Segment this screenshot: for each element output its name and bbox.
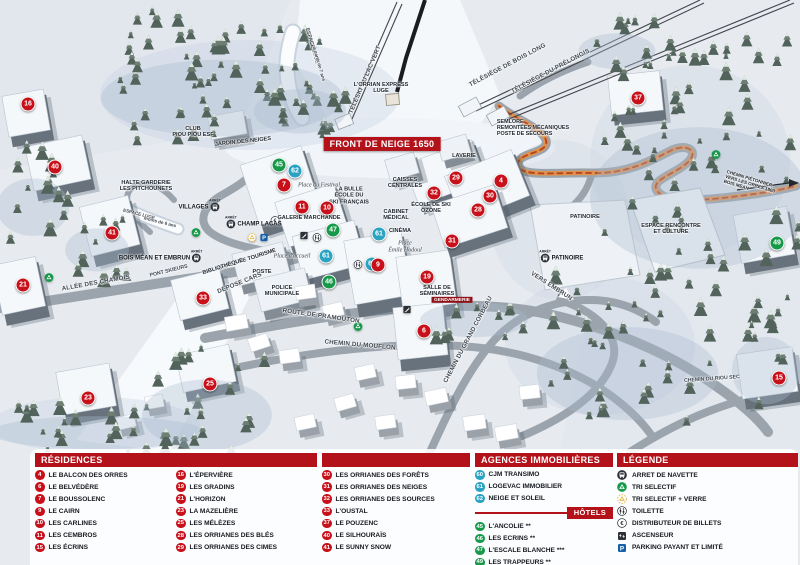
agencies-header: AGENCES IMMOBILIÈRES — [475, 453, 613, 467]
legende-item-label: DISTRIBUTEUR DE BILLETS — [632, 520, 721, 527]
legend-item: 7LE BOUSSOLENC — [35, 493, 176, 505]
legend-item: 31LES ORRIANES DES NEIGES — [322, 481, 470, 493]
legend-item-label: LE SUNNY SNOW — [336, 544, 392, 551]
legend-item: 45L'ANCOLIE ** — [475, 521, 613, 533]
legend-item-label: NEIGE ET SOLEIL — [489, 495, 545, 502]
legende-item-label: TRI SELECTIF + VERRE — [632, 496, 707, 503]
legend-item-label: LES ORRIANES DES SOURCES — [336, 496, 435, 503]
residences-list-c: 30LES ORRIANES DES FORÊTS31LES ORRIANES … — [322, 469, 470, 554]
legend-item: 15LES ÉCRINS — [35, 542, 176, 554]
legend-item-label: LE BALCON DES ORRES — [49, 472, 128, 479]
legend-item: 10LES CARLINES — [35, 517, 176, 529]
legend-item-label: L'ÉPERVIÈRE — [190, 472, 233, 479]
marker-number: 33 — [322, 507, 332, 517]
legend-item-label: LES GRADINS — [190, 484, 235, 491]
elevator-icon — [617, 531, 627, 541]
marker-number: 49 — [475, 558, 485, 565]
marker-number: 9 — [35, 507, 45, 517]
agencies-list: 60CJM TRANSIMO61LOGEVAC IMMOBILIER62NEIG… — [475, 469, 613, 505]
recycle-yellow-icon — [617, 494, 627, 504]
legend-item: 41LE SUNNY SNOW — [322, 542, 470, 554]
marker-number: 31 — [322, 482, 332, 492]
marker-number: 7 — [35, 494, 45, 504]
hotels-list: 45L'ANCOLIE **46LES ECRINS **47L'ESCALE … — [475, 521, 613, 565]
parking-icon: P — [617, 543, 627, 553]
legend-item: 62NEIGE ET SOLEIL — [475, 493, 613, 505]
marker-number: 62 — [475, 494, 485, 504]
hotels-header: HÔTELS — [475, 507, 613, 519]
legend-item-label: LES CARLINES — [49, 520, 97, 527]
euro-icon: € — [617, 518, 627, 528]
legend-item-label: LOGEVAC IMMOBILIER — [489, 483, 563, 490]
marker-number: 11 — [35, 531, 45, 541]
legende-item: TRI SELECTIF — [617, 481, 798, 493]
legende-item-label: TOILETTE — [632, 508, 664, 515]
legend-item-label: L'ANCOLIE ** — [489, 523, 531, 530]
legende-item-label: ARRET DE NAVETTE — [632, 472, 698, 479]
legend-item: 40LE SILHOURAÏS — [322, 529, 470, 541]
legende-item: PPARKING PAYANT ET LIMITÉ — [617, 542, 798, 554]
marker-number: 19 — [176, 482, 186, 492]
marker-number: 4 — [35, 470, 45, 480]
legend-item: 61LOGEVAC IMMOBILIER — [475, 481, 613, 493]
marker-number: 23 — [176, 507, 186, 517]
marker-number: 45 — [475, 522, 485, 532]
recycle-green-icon — [617, 482, 627, 492]
legende-item: TOILETTE — [617, 505, 798, 517]
legend-item: 23LA MAZELIÈRE — [176, 505, 317, 517]
legend-item: 25LES MÉLÈZES — [176, 517, 317, 529]
legend-item: 9LE CAIRN — [35, 505, 176, 517]
legend-item-label: LES ORRIANES DES BLÉS — [190, 532, 274, 539]
bus-icon — [617, 470, 627, 480]
legend-item: 46LES ECRINS ** — [475, 533, 613, 545]
legend-item: 16L'ÉPERVIÈRE — [176, 469, 317, 481]
legend-item-label: LE CAIRN — [49, 508, 80, 515]
legend-item-label: LES CEMBROS — [49, 532, 97, 539]
legend-item: 6LE BELVÉDÈRE — [35, 481, 176, 493]
residences-section-cont: 30LES ORRIANES DES FORÊTS31LES ORRIANES … — [322, 453, 470, 554]
legend-item-label: LE SILHOURAÏS — [336, 532, 387, 539]
legende-header: LÉGENDE — [617, 453, 798, 467]
legend-item: 21L'HORIZON — [176, 493, 317, 505]
legend-item: 29LES ORRIANES DES CIMES — [176, 542, 317, 554]
legend-item: 33L'OUSTAL — [322, 505, 470, 517]
residences-header: RÉSIDENCES — [35, 453, 317, 467]
marker-number: 15 — [35, 543, 45, 553]
legend-item-label: L'HORIZON — [190, 496, 226, 503]
legend-item-label: LES ÉCRINS — [49, 544, 89, 551]
legend-item-label: LES ORRIANES DES FORÊTS — [336, 472, 429, 479]
marker-number: 61 — [475, 482, 485, 492]
marker-number: 16 — [176, 470, 186, 480]
legend-item-label: LES ORRIANES DES NEIGES — [336, 484, 428, 491]
legend-item: 28LES ORRIANES DES BLÉS — [176, 529, 317, 541]
legend-item-label: LE BOUSSOLENC — [49, 496, 106, 503]
residences-list-a: 4LE BALCON DES ORRES6LE BELVÉDÈRE7LE BOU… — [35, 469, 176, 554]
legend-item: 4LE BALCON DES ORRES — [35, 469, 176, 481]
legende-list: ARRET DE NAVETTETRI SELECTIFTRI SELECTIF… — [617, 469, 798, 554]
marker-number: 6 — [35, 482, 45, 492]
marker-number: 41 — [322, 543, 332, 553]
legend-item-label: LE POUZENC — [336, 520, 379, 527]
svg-text:P: P — [620, 545, 624, 552]
legend-item: 19LES GRADINS — [176, 481, 317, 493]
legend-item-label: LES MÉLÈZES — [190, 520, 236, 527]
legend-item: 60CJM TRANSIMO — [475, 469, 613, 481]
marker-number: 30 — [322, 470, 332, 480]
residences-list-b: 16L'ÉPERVIÈRE19LES GRADINS21L'HORIZON23L… — [176, 469, 317, 554]
legende-item-label: PARKING PAYANT ET LIMITÉ — [632, 544, 723, 551]
legend-item: 37LE POUZENC — [322, 517, 470, 529]
legend-item-label: L'OUSTAL — [336, 508, 368, 515]
legend-item-label: LE BELVÉDÈRE — [49, 484, 99, 491]
legend-item: 47L'ESCALE BLANCHE *** — [475, 544, 613, 556]
marker-number: 32 — [322, 494, 332, 504]
legend-item: 32LES ORRIANES DES SOURCES — [322, 493, 470, 505]
legend-item-label: LES TRAPPEURS ** — [489, 559, 551, 565]
hotels-title: HÔTELS — [567, 507, 613, 519]
agencies-title: AGENCES IMMOBILIÈRES — [481, 455, 600, 465]
resort-map-page: P€ FRONT DE NEIGE 1650ESPACE LUGEà parti… — [0, 0, 800, 565]
legende-title: LÉGENDE — [623, 455, 669, 465]
marker-number: 60 — [475, 470, 485, 480]
legende-item: ARRET DE NAVETTE — [617, 469, 798, 481]
legend-item-label: CJM TRANSIMO — [489, 471, 540, 478]
legend-item: 49LES TRAPPEURS ** — [475, 556, 613, 565]
residences-section: RÉSIDENCES 4LE BALCON DES ORRES6LE BELVÉ… — [35, 453, 317, 554]
legende-item: TRI SELECTIF + VERRE — [617, 493, 798, 505]
marker-number: 47 — [475, 546, 485, 556]
marker-number: 21 — [176, 494, 186, 504]
legende-section: LÉGENDE ARRET DE NAVETTETRI SELECTIFTRI … — [617, 453, 798, 554]
marker-number: 28 — [176, 531, 186, 541]
legende-item-label: ASCENSEUR — [632, 532, 673, 539]
legende-item: ASCENSEUR — [617, 529, 798, 541]
legend-item-label: LES ORRIANES DES CIMES — [190, 544, 278, 551]
wc-icon — [617, 506, 627, 516]
legend-item: 11LES CEMBROS — [35, 529, 176, 541]
residences-title: RÉSIDENCES — [41, 455, 103, 465]
legende-item: €DISTRIBUTEUR DE BILLETS — [617, 517, 798, 529]
legend-item-label: L'ESCALE BLANCHE *** — [489, 547, 565, 554]
legend-item-label: LES ECRINS ** — [489, 535, 536, 542]
marker-number: 10 — [35, 519, 45, 529]
agencies-section: AGENCES IMMOBILIÈRES 60CJM TRANSIMO61LOG… — [475, 453, 613, 565]
marker-number: 46 — [475, 534, 485, 544]
legend-item-label: LA MAZELIÈRE — [190, 508, 238, 515]
marker-number: 25 — [176, 519, 186, 529]
marker-number: 29 — [176, 543, 186, 553]
legende-item-label: TRI SELECTIF — [632, 484, 676, 491]
marker-number: 37 — [322, 519, 332, 529]
marker-number: 40 — [322, 531, 332, 541]
residences-header-cont — [322, 453, 470, 467]
legend-item: 30LES ORRIANES DES FORÊTS — [322, 469, 470, 481]
